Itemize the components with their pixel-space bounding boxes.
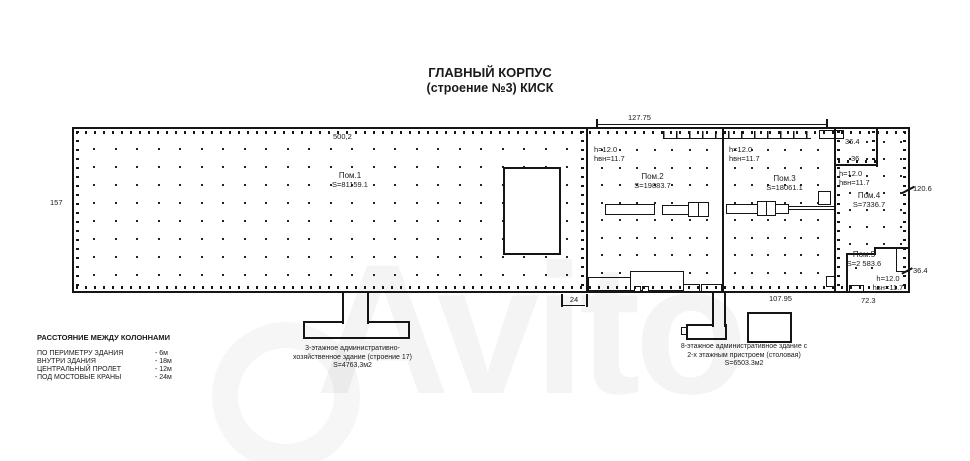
room-3-area: S=18061.1 (757, 184, 812, 193)
room-5-hvn: hвн=11.7 (864, 284, 912, 293)
annotation-right-line-2: 2-х этажным пристроем (столовая) (628, 352, 860, 361)
legend-title: РАССТОЯНИЕ МЕЖДУ КОЛОННАМИ (37, 334, 170, 343)
pom3-equipment-box (818, 191, 831, 205)
legend-list: ПО ПЕРИМЕТРУ ЗДАНИЯ - 6м ВНУТРИ ЗДАНИЯ -… (37, 350, 183, 382)
teeth-bottom-edge (76, 286, 906, 289)
dim-tick-bay-right (586, 294, 588, 307)
room-1-label: Пом.1 S=81159.1 (318, 172, 382, 189)
legend-item-central-span-value: - 12м (155, 366, 172, 374)
legend-item-perimeter: ПО ПЕРИМЕТРУ ЗДАНИЯ - 6м (37, 350, 183, 358)
pom3-equipment-rail (788, 206, 835, 210)
dim-notch-width: 36.4 (845, 138, 860, 147)
room-5-heights: h=12.0 hвн=11.7 (864, 275, 912, 292)
legend-item-inside-value: - 18м (155, 358, 172, 366)
teeth-right-edge (903, 131, 906, 289)
dim-right-height: 120.6 (913, 185, 932, 194)
teeth-wall-pom1-pom2 (581, 131, 584, 286)
legend-item-central-span: ЦЕНТРАЛЬНЫЙ ПРОЛЕТ - 12м (37, 366, 183, 374)
drawing-title: ГЛАВНЫЙ КОРПУС (строение №3) КИСК (355, 65, 625, 96)
room-3-label: Пом.3 S=18061.1 (757, 175, 812, 192)
annotation-left-line-3: S=4763,3м2 (240, 362, 465, 371)
notch-wall-horizontal (836, 164, 878, 166)
legend-item-perimeter-value: - 6м (155, 350, 168, 358)
legend-item-perimeter-label: ПО ПЕРИМЕТРУ ЗДАНИЯ (37, 350, 155, 358)
dim-bottom-section: 107.95 (769, 295, 792, 304)
legend-item-inside: ВНУТРИ ЗДАНИЯ - 18м (37, 358, 183, 366)
annotation-left-building: 3-этажное административно- хозяйственное… (240, 345, 465, 371)
title-line-1: ГЛАВНЫЙ КОРПУС (355, 65, 625, 81)
annotation-left-line-2: хозяйственное здание (строение 17) (240, 354, 465, 363)
avito-watermark-circle (212, 322, 360, 461)
admin-building-3fl-stem (342, 293, 369, 324)
room-4-label: Пом.4 S=7336.7 (845, 192, 893, 209)
room-2-label: Пом.2 S=19883.7 (625, 173, 680, 190)
room-2-heights: h=12.0 hвн=11.7 (594, 146, 625, 163)
room-5-label: Пом.5 S=2 583.6 (838, 251, 890, 268)
rooftop-structures-row (663, 131, 811, 139)
pom3-equipment-3 (766, 201, 776, 216)
admin-building-8fl-stem (712, 293, 726, 327)
legend-item-cranes: ПОД МОСТОВЫЕ КРАНЫ - 24м (37, 374, 183, 382)
room-5-area: S=2 583.6 (838, 260, 890, 269)
dim-top-section: 127.75 (628, 114, 651, 123)
annotation-right-line-1: 8-этажное административное здание с (628, 343, 860, 352)
admin-building-8fl-annex (747, 312, 792, 343)
pom2-equipment-4 (698, 202, 709, 217)
floor-plan-page: Avito ГЛАВНЫЙ КОРПУС (строение №3) КИСК (0, 0, 970, 461)
wall-pom2-pom3 (722, 129, 724, 291)
legend-item-cranes-value: - 24м (155, 374, 172, 382)
pom1-inner-structure (503, 167, 561, 255)
annotation-right-line-3: S=6503.3м2 (628, 360, 860, 369)
room-3-hvn: hвн=11.7 (729, 155, 760, 164)
pom5-top-wall-right (874, 247, 910, 249)
legend-item-central-span-label: ЦЕНТРАЛЬНЫЙ ПРОЛЕТ (37, 366, 155, 374)
room-1-area: S=81159.1 (318, 181, 382, 190)
dim-tick-top-left (596, 119, 598, 129)
annotation-right-building: 8-этажное административное здание с 2-х … (628, 343, 860, 369)
annotation-left-line-1: 3-этажное административно- (240, 345, 465, 354)
legend-item-cranes-label: ПОД МОСТОВЫЕ КРАНЫ (37, 374, 155, 382)
teeth-left-edge (76, 131, 79, 289)
pom2-equipment-1 (605, 204, 655, 215)
notch-wall-vertical (876, 129, 878, 167)
legend-item-inside-label: ВНУТРИ ЗДАНИЯ (37, 358, 155, 366)
dim-line-bay-gap (563, 305, 585, 306)
room-2-area: S=19883.7 (625, 182, 680, 191)
dim-pom5-height: 36.4 (913, 267, 928, 276)
title-line-2: (строение №3) КИСК (355, 81, 625, 96)
wall-pom3-pom4 (834, 129, 836, 291)
admin-building-8fl-nub (681, 327, 687, 335)
room-2-hvn: hвн=11.7 (594, 155, 625, 164)
room-3-heights: h=12.0 hвн=11.7 (729, 146, 760, 163)
room-4-hvn: hвн=11.7 (839, 179, 870, 188)
room-4-heights: h=12.0 hвн=11.7 (839, 170, 870, 187)
dim-pom5-width: 72.3 (861, 297, 876, 306)
dim-line-top-section (597, 124, 827, 125)
dim-tick-top-right (826, 119, 828, 129)
room-4-area: S=7336.7 (845, 201, 893, 210)
wall-pom1-pom2 (586, 129, 588, 291)
pom2-equipment-2 (662, 205, 689, 215)
dim-notch-height: 36 (851, 155, 859, 164)
dim-left-height: 157 (50, 199, 63, 208)
dim-bay-gap: 24 (562, 296, 586, 305)
dim-top-width: 500,2 (333, 133, 352, 142)
